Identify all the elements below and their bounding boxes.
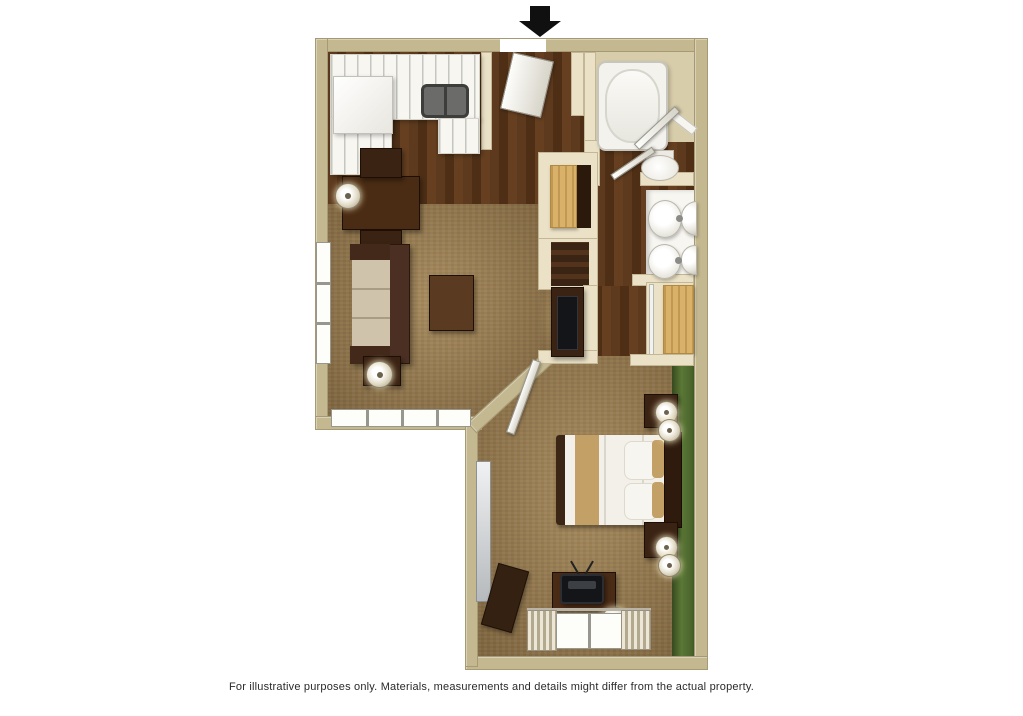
sofa	[350, 244, 410, 364]
outer-wall-bottom	[465, 656, 708, 670]
curtain-left	[527, 610, 557, 651]
bathroom-west-wall	[584, 52, 596, 148]
hall-closet-interior	[577, 165, 591, 228]
dining-chair-north	[360, 148, 402, 178]
linen-shelf-towels	[551, 242, 589, 286]
kitchen-entry-divider-wall	[481, 52, 492, 150]
duvet-fold	[604, 435, 606, 525]
entry-arrow-head	[519, 21, 561, 37]
bathtub	[597, 61, 668, 151]
bed	[556, 432, 682, 528]
tv-console-screen	[557, 296, 578, 350]
refrigerator	[333, 76, 393, 134]
hall-closet-door	[550, 165, 577, 228]
bed-headboard	[664, 432, 682, 528]
nightstand-south-lamp-2	[658, 554, 681, 577]
cushion-seam	[352, 288, 390, 290]
bed-foot-band	[556, 435, 565, 525]
entry-door-opening	[500, 39, 546, 52]
vanity-faucet-1	[676, 215, 683, 222]
window-mullion	[366, 410, 369, 426]
living-south-windows	[331, 409, 471, 427]
cushion-seam	[352, 317, 390, 319]
window-mullion	[401, 410, 404, 426]
window-mullion	[317, 322, 330, 325]
curtain-right	[621, 610, 651, 650]
bedroom-tv	[560, 574, 604, 604]
window-mullion	[436, 410, 439, 426]
kitchen-sink	[421, 84, 469, 118]
vanity-faucet-2	[675, 257, 682, 264]
vanity-floor	[596, 188, 650, 286]
outer-wall-right	[694, 38, 708, 670]
right-closet-mirror-rail	[649, 284, 654, 355]
bed-gold-runner	[575, 435, 599, 525]
sofa-arm-north	[350, 244, 390, 260]
outer-wall-left	[315, 38, 328, 430]
wall-mirror-panel	[476, 461, 491, 602]
dining-wall-lamp	[335, 183, 361, 209]
floor-plan-canvas: For illustrative purposes only. Material…	[0, 0, 1023, 716]
bedroom-window	[556, 613, 623, 649]
right-closet-south-wall	[630, 354, 694, 366]
toilet-bowl	[641, 155, 679, 181]
coffee-table	[429, 275, 474, 331]
window-mullion	[317, 282, 330, 285]
kitchen-counter-right	[438, 118, 480, 154]
right-closet-door	[663, 285, 694, 354]
sofa-back	[388, 244, 410, 364]
sofa-cushions	[352, 260, 390, 346]
bed-bolster-2	[652, 482, 664, 518]
entry-arrow-shaft	[530, 6, 550, 22]
kitchen-sink-divider	[444, 87, 447, 115]
caption: For illustrative purposes only. Material…	[0, 681, 983, 693]
window-mullion	[588, 614, 591, 648]
tv-console	[551, 287, 584, 357]
bed-bolster-1	[652, 440, 664, 478]
entry-east-wall	[571, 52, 584, 116]
living-side-window	[316, 242, 331, 364]
tv-screen-sheen	[568, 581, 596, 589]
end-table-lamp	[366, 361, 393, 388]
nightstand-north-lamp-2	[658, 419, 681, 442]
